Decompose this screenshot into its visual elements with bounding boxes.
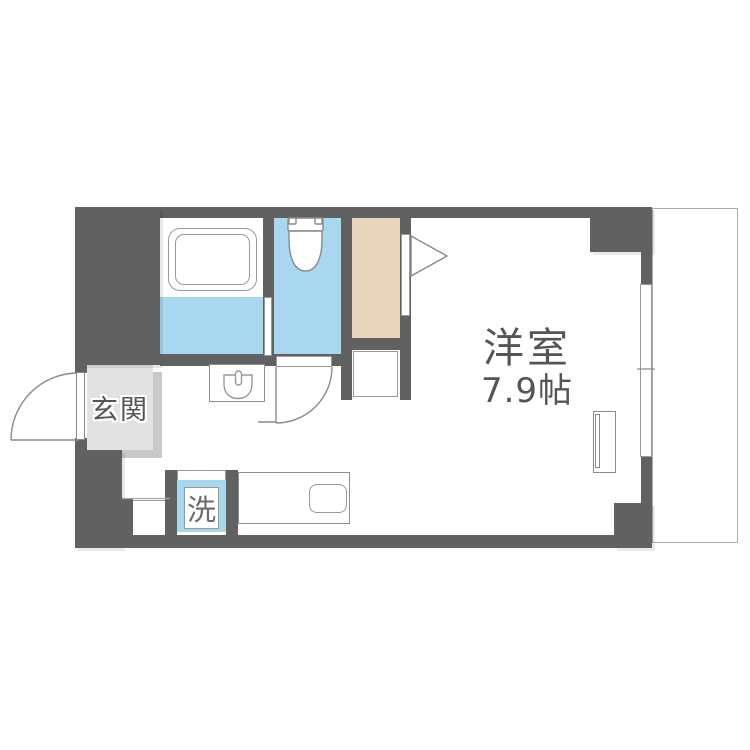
refrigerator-space — [353, 351, 398, 397]
room-size-text: 7.9帖 — [481, 372, 573, 410]
wall-left-above-door — [75, 353, 87, 373]
closet-floor — [352, 218, 400, 338]
wall-bottom-band — [75, 535, 652, 548]
kitchen-sink — [309, 484, 347, 513]
balcony — [652, 208, 738, 543]
entrance-floor: 玄関 — [87, 364, 153, 450]
washbasin-counter — [209, 364, 265, 402]
western-room-label: 洋室 7.9帖 — [427, 318, 627, 418]
wall-toilet-closet — [341, 218, 352, 400]
closet-door-triangle — [411, 236, 447, 276]
window — [640, 284, 652, 457]
entrance-door-panel — [76, 372, 85, 440]
wall-top-band — [75, 207, 652, 218]
bathroom-wet-floor — [160, 297, 263, 355]
closet-door-panel — [401, 234, 410, 316]
toilet-room-floor — [274, 218, 341, 357]
entrance-label: 玄関 — [91, 388, 149, 427]
wall-shelf-inner — [595, 414, 600, 468]
floor-plan: 玄関 洗 洋室 7.9帖 — [0, 0, 750, 750]
wall-bottom-right-chunk — [614, 503, 652, 548]
wall-top-left-block — [75, 207, 160, 365]
toilet-doorway — [276, 356, 332, 367]
room-name-text: 洋室 — [483, 326, 571, 372]
toilet-door-swing — [258, 367, 332, 423]
wall-bottom-left-block — [75, 450, 122, 548]
washer-box: 洗 — [184, 487, 219, 529]
bathtub-inner — [175, 234, 250, 285]
washer-label: 洗 — [187, 487, 216, 529]
hall-floor-notch — [133, 500, 165, 535]
bath-partition-panel — [264, 297, 272, 356]
wall-under-closet — [341, 338, 411, 350]
entrance-door-swing — [11, 373, 79, 440]
